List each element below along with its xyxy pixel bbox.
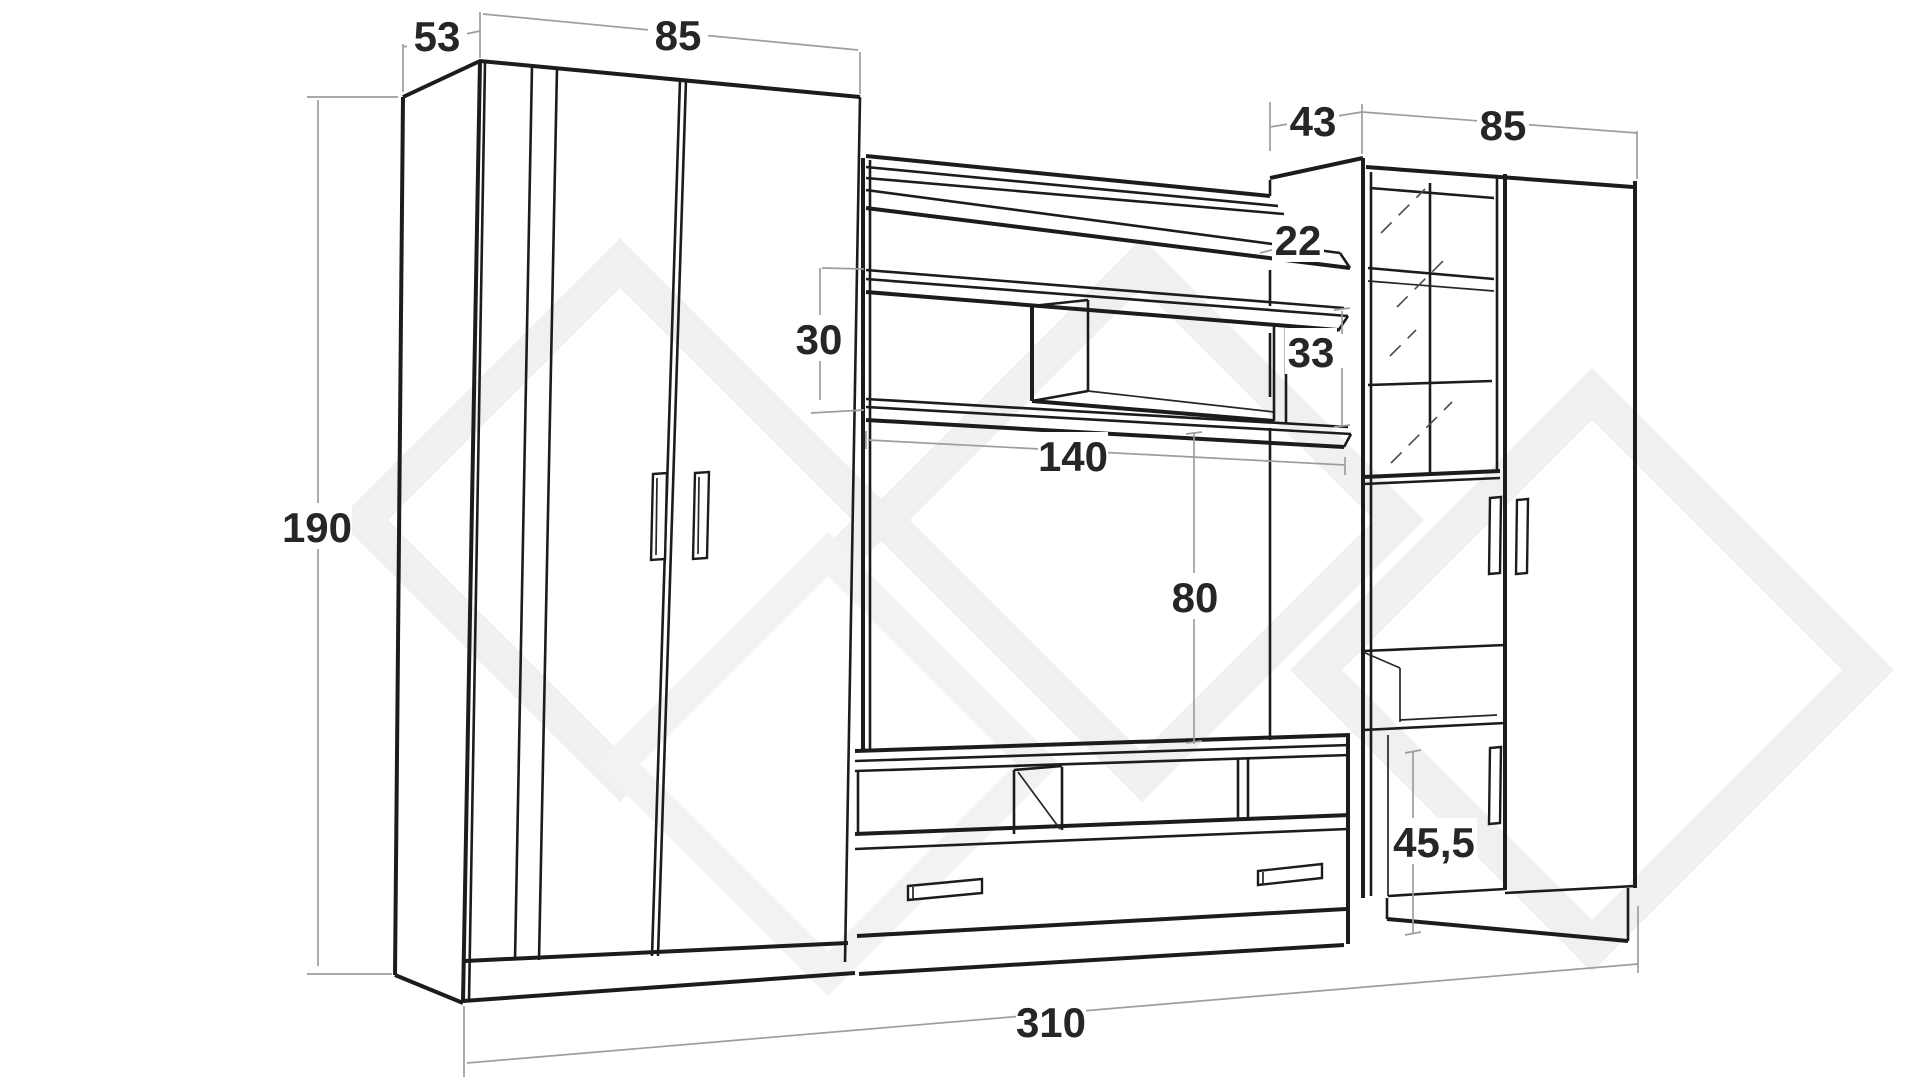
cabinet-mid-door-handle [1489, 497, 1501, 574]
drawer-handle-right [1258, 864, 1322, 885]
dim-base-height: 45,5 [1393, 819, 1475, 866]
dim-niche-width: 140 [1038, 433, 1108, 480]
cabinet-lower-door-handle [1489, 747, 1501, 824]
dim-wardrobe-depth: 53 [414, 13, 461, 60]
watermark-diamonds [338, 238, 1894, 996]
dim-cabinet-width: 85 [1480, 102, 1527, 149]
dim-shelf-gap-right: 33 [1288, 329, 1335, 376]
dim-top-shelf-height: 22 [1275, 217, 1322, 264]
furniture-dimension-diagram: 53 85 190 30 140 80 22 33 43 85 45,5 310 [0, 0, 1920, 1080]
dim-niche-height: 80 [1172, 574, 1219, 621]
dim-cabinet-depth: 43 [1290, 98, 1337, 145]
wardrobe-right-door-handle [693, 472, 709, 559]
glass-hatch [1381, 189, 1425, 233]
wardrobe-left-door-handle [651, 473, 667, 560]
dim-wardrobe-width: 85 [655, 12, 702, 59]
dim-total-width: 310 [1016, 999, 1086, 1046]
cabinet-tall-door-handle [1516, 499, 1528, 574]
dim-shelf-gap-left: 30 [796, 316, 843, 363]
diagram-canvas: 53 85 190 30 140 80 22 33 43 85 45,5 310 [0, 0, 1920, 1080]
glass-display [1363, 178, 1500, 484]
dim-total-height: 190 [282, 504, 352, 551]
